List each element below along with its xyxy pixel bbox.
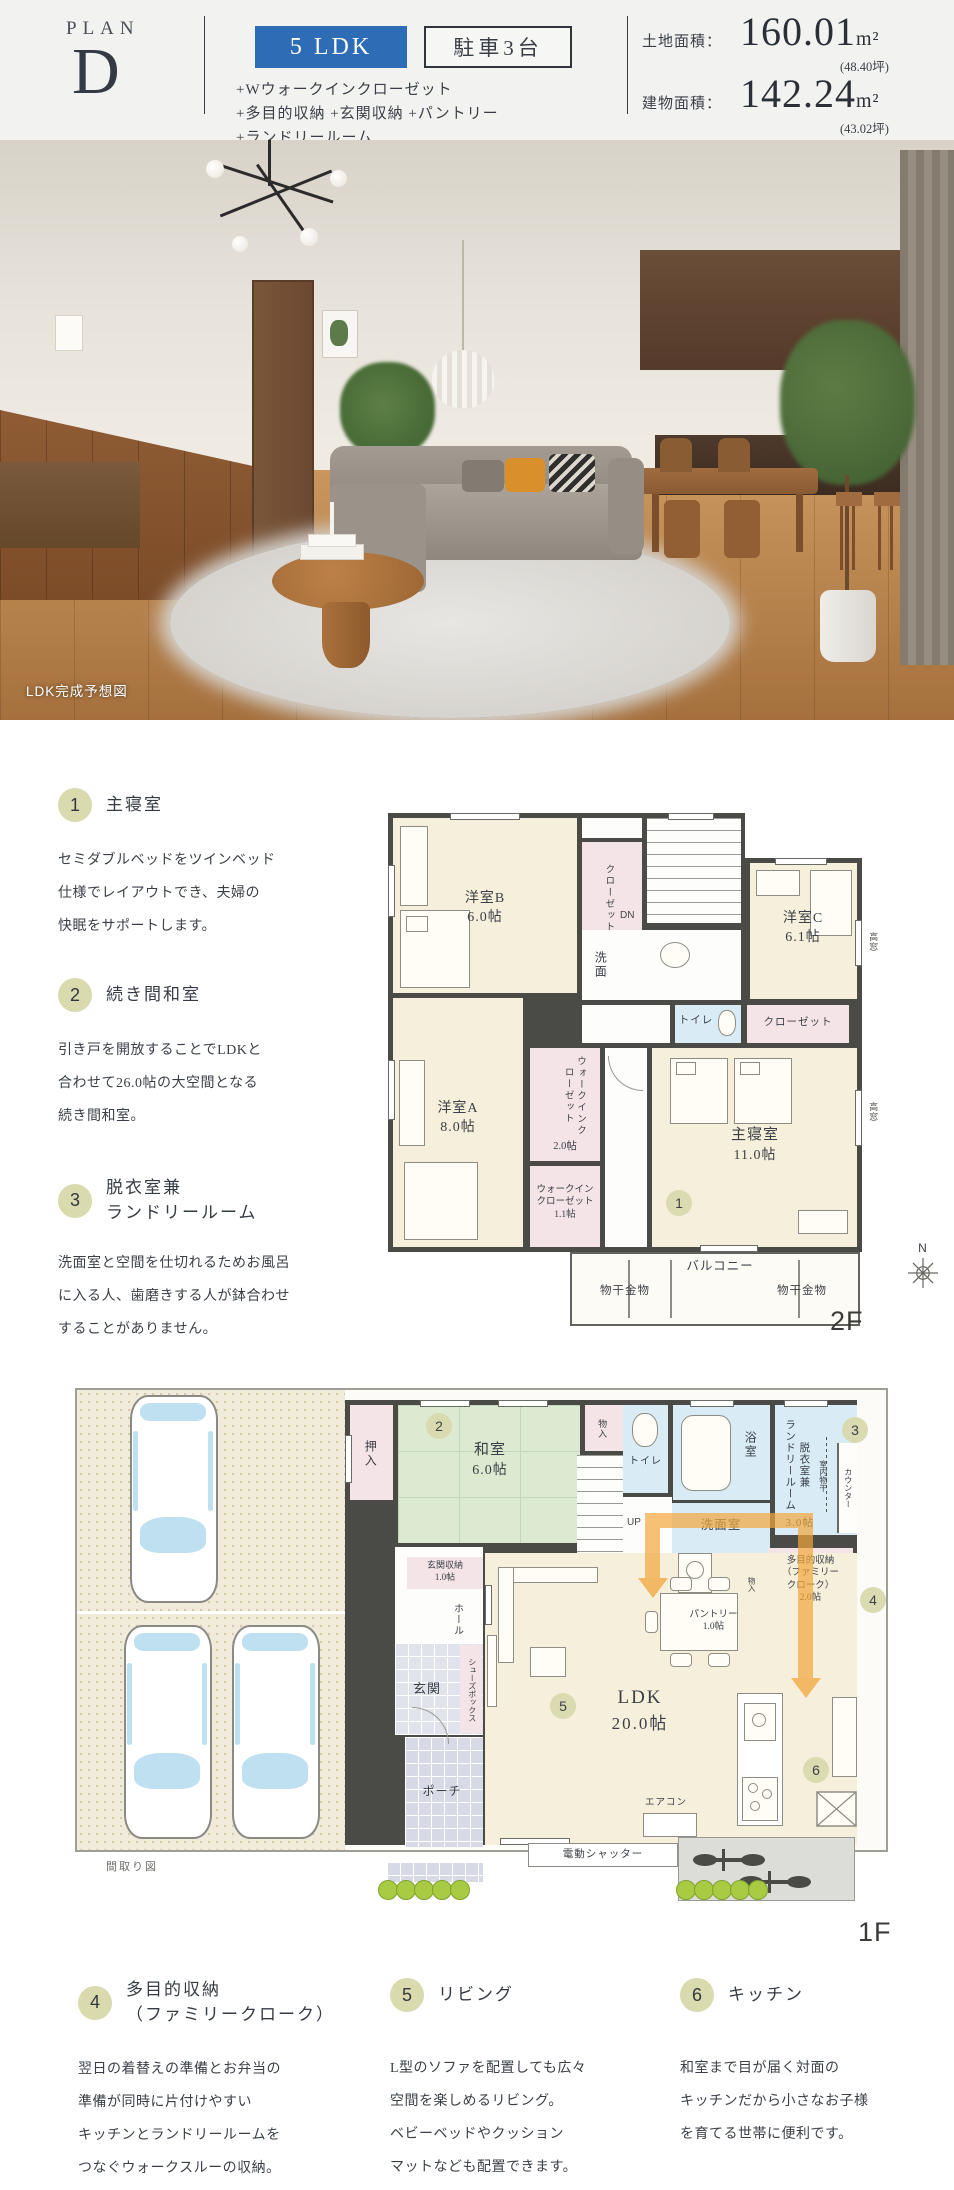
cushion-patterned (549, 454, 595, 492)
section-1: 1 主寝室 セミダブルベッドをツインベッド 仕様でレイアウトでき、夫婦の 快眠を… (58, 788, 296, 943)
section-2-title: 続き間和室 (106, 983, 201, 1008)
1f-shutter-label: 電動シャッター (530, 1848, 676, 1862)
dining-chair-3 (664, 500, 700, 558)
1f-window-top-1 (420, 1400, 470, 1407)
land-area-label: 土地面積： (642, 30, 722, 51)
1f-window-ldk-left (485, 1585, 492, 1625)
2f-wic2-size: 2.0帖 (538, 1140, 592, 1154)
2f-a-bed (404, 1162, 478, 1240)
car-2-windshield (134, 1753, 200, 1789)
2f-master-pillow-1 (676, 1062, 696, 1075)
floor-plan-2f: 洋室B6.0帖 クローゼット DN 洗面 洋室C6.1帖 トイレ クローゼット … (370, 770, 954, 1370)
section-5-number: 5 (390, 1978, 424, 2012)
section-6-number: 6 (680, 1978, 714, 2012)
chandelier-bulb-4 (232, 236, 248, 252)
parking-badge: 駐車3台 (424, 26, 572, 68)
1f-washitsu-label: 和室6.0帖 (445, 1440, 535, 1481)
1f-bathtub (681, 1415, 731, 1491)
2f-senmen-label: 洗面 (592, 936, 608, 994)
low-console (0, 462, 140, 548)
1f-up-label: UP (627, 1517, 641, 1528)
2f-monohoshi-left: 物干金物 (585, 1284, 665, 1300)
section-3-body: 洗面室と空間を仕切れるためお風呂 に入る人、歯磨きする人が鉢合わせ することがあ… (58, 1247, 296, 1346)
2f-balcony-label: バルコニー (670, 1258, 770, 1275)
bush-3 (414, 1880, 434, 1900)
2f-window-left-2 (388, 1060, 395, 1120)
compass-icon (908, 1258, 938, 1288)
1f-window-left-1 (345, 1435, 352, 1483)
dining-chair-1 (660, 438, 692, 472)
1f-stove (742, 1777, 778, 1821)
plan-sheet: PLAN D 5 LDK 駐車3台 +Wウォークインクローゼット +多目的収納 … (0, 0, 954, 2190)
2f-window-left-1 (388, 865, 395, 917)
section-5: 5 リビング L型のソファを配置しても広々 空間を楽しめるリビング。 ベビーベッ… (390, 1978, 640, 2184)
1f-porch-step-tiles (387, 1862, 483, 1882)
section-6: 6 キッチン 和室まで目が届く対面の キッチンだから小さなお子様 を育てる世帯に… (680, 1978, 950, 2151)
1f-sink-faucet (752, 1713, 766, 1727)
bush-5 (450, 1880, 470, 1900)
section-2-body: 引き戸を開放することでLDKと 合わせて26.0帖の大空間となる 続き間和室。 (58, 1034, 296, 1133)
floor-plan-1f: 押入 和室6.0帖 2 物入 UP 玄関収納 1.0帖 ホール 玄関 シューズボ… (60, 1385, 954, 1965)
1f-tall-cabinet (832, 1697, 857, 1777)
2f-closet-strip-label: クローゼット (602, 850, 614, 946)
car-3-window-left (235, 1663, 240, 1745)
sofa-arm (608, 458, 644, 554)
1f-washitsu-name: 和室 (474, 1442, 506, 1458)
2f-master-size: 11.0帖 (734, 1148, 777, 1163)
bar-stool-2 (874, 492, 900, 570)
2f-window-right-1 (855, 920, 862, 966)
2f-yoshitsu-b-name: 洋室B (465, 891, 505, 906)
building-area-number: 142.24 (740, 71, 856, 116)
2f-master-pillow-2 (740, 1062, 760, 1075)
1f-marker-2: 2 (426, 1413, 452, 1439)
section-4-body: 翌日の着替えの準備とお弁当の 準備が同時に片付けやすい キッチンとランドリールー… (78, 2053, 378, 2185)
dining-table-leg-2 (796, 494, 803, 552)
car-1-window-left (133, 1431, 138, 1511)
1f-counter-label: カウンター (842, 1447, 853, 1529)
section-4-title: 多目的収納 （ファミリークローク） (126, 1978, 335, 2027)
land-area-number: 160.01 (740, 9, 856, 54)
2f-window-top-1 (450, 813, 520, 820)
2f-master-name: 主寝室 (731, 1127, 779, 1143)
building-area-tsubo: (43.02坪) (840, 118, 889, 137)
1f-toilet-bowl (632, 1413, 658, 1447)
2f-stairs (647, 818, 741, 923)
1f-porch-label: ポーチ (412, 1783, 472, 1799)
dining-table-leg-1 (652, 494, 659, 552)
section-5-body: L型のソファを配置しても広々 空間を楽しめるリビング。 ベビーベッドやクッション… (390, 2052, 640, 2184)
2f-yoshitsu-a-size: 8.0帖 (440, 1120, 476, 1135)
coffee-table-base (322, 602, 370, 668)
1f-datsui-label: 脱衣室兼 ランドリールーム (782, 1415, 810, 1515)
1f-oshiire-label: 押入 (362, 1415, 378, 1493)
section-1-number: 1 (58, 788, 92, 822)
1f-ldk-size: 20.0帖 (612, 1714, 669, 1733)
feature-line-1: +Wウォークインクローゼット (236, 78, 453, 102)
bush-7 (694, 1880, 714, 1900)
land-area-value: 160.01m² (740, 8, 880, 55)
bar-stool-1 (836, 492, 862, 570)
pendant-cord (462, 240, 464, 352)
photo-caption: LDK完成予想図 (26, 680, 128, 700)
2f-yoshitsu-a-label: 洋室A8.0帖 (413, 1100, 503, 1138)
bush-8 (712, 1880, 732, 1900)
car-1-rear-glass (140, 1403, 206, 1421)
bush-10 (748, 1880, 768, 1900)
feature-sections-bottom: 4 多目的収納 （ファミリークローク） 翌日の着替えの準備とお弁当の 準備が同時… (60, 1978, 954, 2190)
1f-aircon-unit (643, 1813, 697, 1837)
section-6-body: 和室まで目が届く対面の キッチンだから小さなお子様 を育てる世帯に便利です。 (680, 2052, 950, 2151)
chandelier-bulb-2 (330, 170, 347, 187)
1f-monohoshi-indoor-label: 室内物干 (817, 1445, 828, 1507)
1f-baby-bed (530, 1647, 566, 1677)
1f-burner-3 (750, 1801, 760, 1811)
header-divider-left (204, 16, 205, 114)
1f-chair-4 (708, 1653, 730, 1667)
1f-ldk-name: LDK (617, 1687, 662, 1708)
section-5-title: リビング (438, 1983, 514, 2008)
flow-arrow-vertical-2 (798, 1528, 813, 1678)
tall-plant-pot (820, 590, 876, 662)
1f-burner-2 (762, 1789, 772, 1799)
bush-1 (378, 1880, 398, 1900)
2f-marker-1: 1 (666, 1190, 692, 1216)
2f-balcony-door (700, 1245, 758, 1252)
1f-chair-1 (670, 1577, 692, 1591)
photo-art-frame-2 (55, 315, 83, 351)
section-4-number: 4 (78, 1986, 112, 2020)
1f-window-top-2 (498, 1400, 548, 1407)
1f-washitsu-size: 6.0帖 (472, 1463, 508, 1478)
section-2: 2 続き間和室 引き戸を開放することでLDKと 合わせて26.0帖の大空間となる… (58, 978, 296, 1133)
1f-window-top-3 (690, 1400, 734, 1407)
2f-c-desk (756, 870, 800, 896)
1f-stairs (577, 1455, 623, 1553)
2f-yoshitsu-c-label: 洋室C6.1帖 (758, 910, 848, 948)
1f-caption: 間取り図 (106, 1858, 158, 1874)
bush-2 (396, 1880, 416, 1900)
section-3-number: 3 (58, 1184, 92, 1218)
1f-aircon-label: エアコン (645, 1797, 705, 1810)
section-4: 4 多目的収納 （ファミリークローク） 翌日の着替えの準備とお弁当の 準備が同時… (78, 1978, 378, 2185)
car-3-window-right (310, 1663, 315, 1745)
feature-line-2: +多目的収納 +玄関収納 +パントリー (236, 102, 499, 126)
2f-wic1-label: ウォークイン クローゼット 1.1帖 (532, 1184, 598, 1221)
section-6-title: キッチン (728, 1983, 804, 2008)
2f-toilet-label: トイレ (676, 1014, 716, 1028)
cushion-gray (462, 460, 504, 492)
car-1-windshield (140, 1517, 206, 1553)
chandelier-bulb-3 (300, 228, 318, 246)
2f-b-pillow (406, 916, 428, 932)
cushion-orange (505, 458, 545, 492)
flow-arrow-horizontal (645, 1513, 813, 1528)
section-2-number: 2 (58, 978, 92, 1012)
1f-monoire-top-label: 物入 (596, 1410, 608, 1448)
1f-marker-4: 4 (860, 1587, 886, 1613)
2f-master-dresser (798, 1210, 848, 1234)
car-1-window-right (208, 1431, 213, 1511)
building-area-unit: m² (856, 90, 880, 112)
1f-chair-3 (670, 1653, 692, 1667)
photo-art-plant-1 (330, 320, 348, 346)
2f-master-label: 主寝室11.0帖 (700, 1125, 810, 1166)
building-area-value: 142.24m² (740, 70, 880, 117)
candlestick (330, 502, 334, 536)
bush-9 (730, 1880, 750, 1900)
car-3-windshield (242, 1753, 308, 1789)
2f-basin (660, 942, 690, 968)
car-2-window-right (202, 1663, 207, 1745)
bush-4 (432, 1880, 452, 1900)
section-1-title: 主寝室 (106, 793, 163, 818)
flow-arrow-vertical-1 (645, 1528, 660, 1578)
header: PLAN D 5 LDK 駐車3台 +Wウォークインクローゼット +多目的収納 … (0, 0, 954, 140)
bush-6 (676, 1880, 696, 1900)
1f-marker-5: 5 (550, 1693, 576, 1719)
ldk-type-badge: 5 LDK (255, 26, 407, 68)
dining-chair-2 (718, 438, 750, 472)
1f-monoire-small-label: 物入 (746, 1571, 756, 1597)
2f-hall-mid (582, 1005, 670, 1043)
1f-chair-2 (708, 1577, 730, 1591)
chandelier-bulb-1 (206, 160, 224, 178)
1f-window-top-4 (784, 1400, 828, 1407)
plan-letter: D (72, 34, 120, 110)
1f-marker-3: 3 (842, 1417, 868, 1443)
pendant-shade (432, 350, 494, 408)
car-1 (130, 1395, 218, 1603)
feature-sections-left: 1 主寝室 セミダブルベッドをツインベッド 仕様でレイアウトでき、夫婦の 快眠を… (58, 788, 296, 1378)
building-area-label: 建物面積： (642, 92, 722, 113)
2f-floor-label: 2F (830, 1306, 864, 1337)
car-2 (124, 1625, 212, 1839)
car-3 (232, 1625, 320, 1839)
dining-chair-4 (724, 500, 760, 558)
1f-toilet-label: トイレ (623, 1455, 668, 1469)
1f-pantry-label: パントリー 1.0帖 (679, 1609, 748, 1634)
1f-genkan-label: 玄関 (402, 1680, 452, 1698)
1f-floor-label: 1F (858, 1917, 892, 1948)
2f-takamado-1: 高窓 (867, 920, 879, 964)
car-2-window-left (127, 1663, 132, 1745)
2f-yoshitsu-b-label: 洋室B6.0帖 (440, 890, 530, 928)
2f-window-right-2 (855, 1090, 862, 1146)
1f-sofa-side (498, 1567, 514, 1663)
1f-marker-6: 6 (803, 1757, 829, 1783)
2f-yoshitsu-c-name: 洋室C (783, 911, 823, 926)
section-3-title: 脱衣室兼 ランドリールーム (106, 1176, 258, 1225)
fern-plant (340, 362, 435, 457)
2f-yoshitsu-b-size: 6.0帖 (467, 910, 503, 925)
1f-shoes-box-label: シューズボックス (466, 1649, 477, 1731)
1f-ldk-label: LDK20.0帖 (580, 1685, 700, 1736)
1f-tv-board (487, 1635, 497, 1707)
2f-yoshitsu-c-size: 6.1帖 (785, 930, 821, 945)
1f-fridge-x-icon (816, 1791, 857, 1827)
2f-takamado-2: 高窓 (867, 1090, 879, 1134)
header-divider-right (627, 16, 628, 114)
2f-compass-n: N (910, 1240, 936, 1256)
tall-plant-foliage (780, 320, 915, 485)
2f-window-top-2 (668, 813, 714, 820)
2f-toilet-bowl (718, 1010, 736, 1036)
2f-yoshitsu-a-name: 洋室A (437, 1101, 478, 1116)
2f-wic2-name: ウォークインクローゼット (542, 1054, 586, 1138)
car-3-rear-glass (242, 1633, 308, 1651)
1f-bath-label: 浴室 (742, 1417, 758, 1473)
flow-arrowhead-2 (791, 1678, 821, 1698)
photo-wood-door (252, 280, 314, 580)
1f-genkan-shuno-label: 玄関収納 1.0帖 (409, 1560, 481, 1583)
ldk-interior-photo: LDK完成予想図 (0, 140, 954, 720)
2f-b-desk (400, 826, 428, 906)
2f-closet-master-label: クローゼット (750, 1016, 846, 1030)
1f-burner-1 (748, 1783, 758, 1793)
1f-chair-5 (645, 1611, 658, 1633)
section-1-body: セミダブルベッドをツインベッド 仕様でレイアウトでき、夫婦の 快眠をサポートしま… (58, 844, 296, 943)
2f-hall-top (582, 818, 642, 838)
flow-arrowhead-1 (638, 1578, 668, 1598)
2f-monohoshi-right: 物干金物 (762, 1284, 842, 1300)
section-3: 3 脱衣室兼 ランドリールーム 洗面室と空間を仕切れるためお風呂 に入る人、歯磨… (58, 1176, 296, 1346)
1f-hall-label: ホール (450, 1597, 464, 1641)
1f-stall-divider (77, 1611, 345, 1614)
car-2-rear-glass (134, 1633, 200, 1651)
2f-window-top-3 (775, 858, 827, 865)
land-area-unit: m² (856, 28, 880, 50)
2f-dn-label: DN (620, 910, 634, 921)
